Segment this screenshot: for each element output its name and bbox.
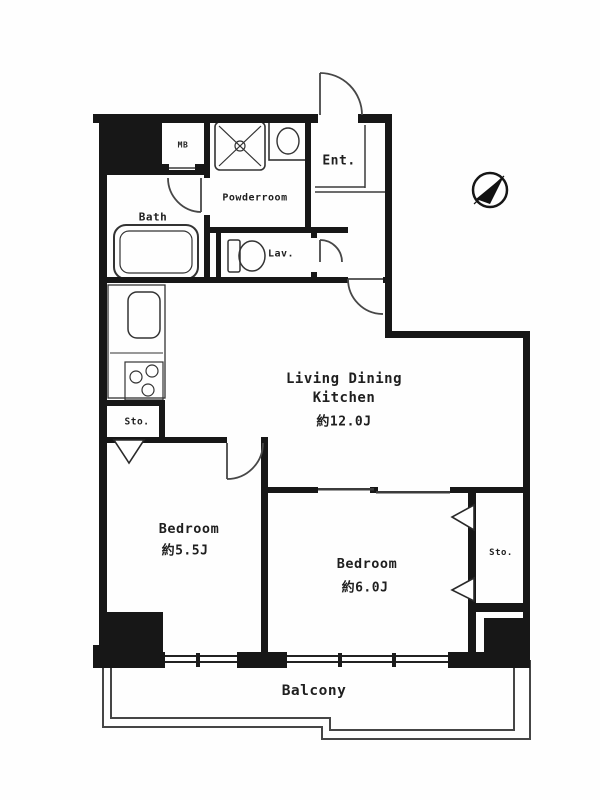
room-label-bedroom-right: Bedroom: [337, 556, 397, 572]
room-area-ldk: 約12.0J: [316, 411, 371, 430]
lavatory-door: [320, 240, 342, 262]
toilet-icon: [228, 240, 265, 272]
washbasin-icon: [269, 122, 307, 160]
room-label-meter-box: MB: [178, 141, 189, 150]
room-label-lavatory: Lav.: [268, 249, 294, 260]
room-area-bedroom-right: 約6.0J: [342, 577, 389, 596]
room-label-bedroom-left: Bedroom: [159, 521, 219, 537]
room-label-entrance: Ent.: [322, 154, 355, 169]
floorplan-canvas: [0, 0, 600, 800]
balcony-windows: [165, 652, 448, 668]
sliding-partition: [318, 488, 450, 494]
balcony-outline: [103, 660, 530, 739]
kitchen-sink-icon: [128, 292, 160, 338]
kitchen-counter: [108, 285, 165, 398]
bedroom-left-door: [227, 443, 263, 479]
floor-plan-page: MB Bath Powderroom Ent. Lav. Living Dini…: [0, 0, 600, 800]
room-label-storage-left: Sto.: [125, 417, 150, 428]
room-label-balcony: Balcony: [282, 683, 347, 699]
room-label-ldk-line2: Kitchen: [313, 390, 376, 406]
room-label-powder-room: Powderroom: [222, 193, 287, 204]
room-label-bath: Bath: [139, 211, 168, 224]
washer-pan-icon: [215, 122, 265, 170]
stove-burners-icon: [125, 362, 163, 400]
bathtub-icon: [114, 225, 198, 279]
room-area-bedroom-left: 約5.5J: [162, 540, 209, 559]
entrance-door: [320, 73, 362, 115]
compass-icon: [473, 173, 507, 207]
bath-door: [168, 178, 201, 212]
room-label-ldk-line1: Living Dining: [286, 371, 402, 387]
room-label-storage-right: Sto.: [489, 548, 513, 558]
ldk-door: [348, 279, 383, 314]
